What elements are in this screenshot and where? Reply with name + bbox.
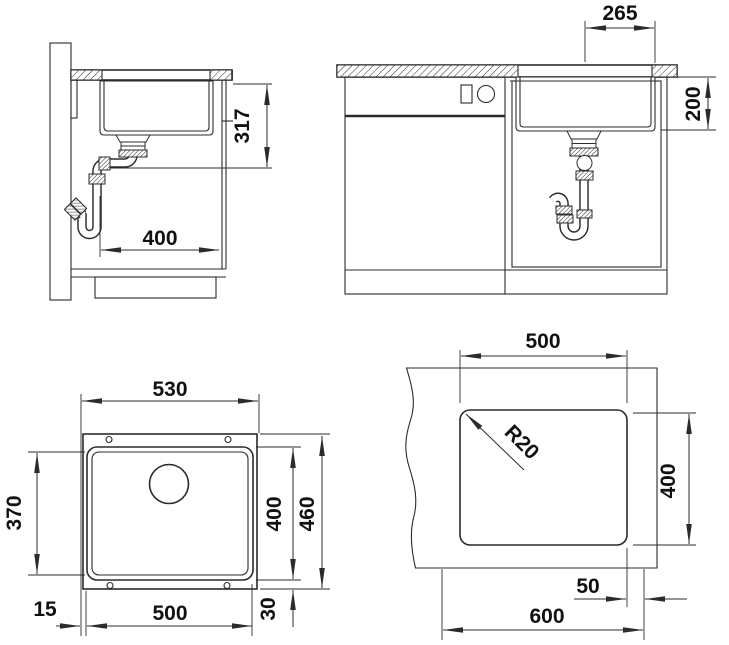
dishwasher-knob-icon [478,86,495,103]
bowl-floor-outline [92,452,248,575]
dim-label-min-cabinet-width: 600 [529,605,564,628]
dim-label-overall-width: 530 [152,378,187,401]
dim-label-bowl-depth: 200 [682,86,705,121]
dim-label-corner-radius: R20 [500,421,544,465]
bowl-side-section [100,81,213,135]
wall-hatch [50,43,71,300]
worktop-cutout-panel [406,368,657,568]
dim-label-cutout-depth: 400 [657,463,680,498]
siphon-front [553,131,601,236]
screw-hole [224,583,230,589]
screw-hole [107,583,113,589]
plinth [95,277,216,298]
wall-batten [71,80,77,118]
dim-label-clearance-width: 400 [142,227,177,250]
cutout-view: R20 500 400 50 600 [406,330,696,640]
front-elevation-view: 265 200 [337,2,716,294]
dim-label-drain-offset: 265 [602,2,637,25]
dim-label-cutout-width: 500 [525,330,560,353]
dim-label-edge-distance: 50 [576,575,599,598]
dim-label-bowl-length: 400 [263,496,286,531]
plan-view: 530 370 400 460 15 500 30 [3,378,330,636]
strainer-side [116,135,150,157]
cutout-outline [460,410,627,545]
dim-label-overall-length: 460 [296,496,319,531]
siphon-side [64,150,133,235]
bowl-front-section [510,77,661,131]
side-section-view: 317 400 [50,43,272,300]
drain-hole [150,465,189,504]
dim-label-bowl-floor-length: 370 [3,495,26,530]
bowl-outline [87,447,253,580]
screw-hole [225,437,231,443]
dim-label-bowl-width: 500 [152,602,187,625]
dim-label-rim-offset-end: 30 [257,597,280,620]
technical-drawing-canvas: 317 400 [0,0,729,645]
dishwasher-display-icon [461,85,472,103]
dim-label-required-depth: 317 [231,108,254,143]
sink-installation-drawing: 317 400 [0,0,729,645]
sink-flange-outline [83,434,257,589]
dim-label-rim-offset-side: 15 [33,598,57,621]
screw-hole [106,437,112,443]
